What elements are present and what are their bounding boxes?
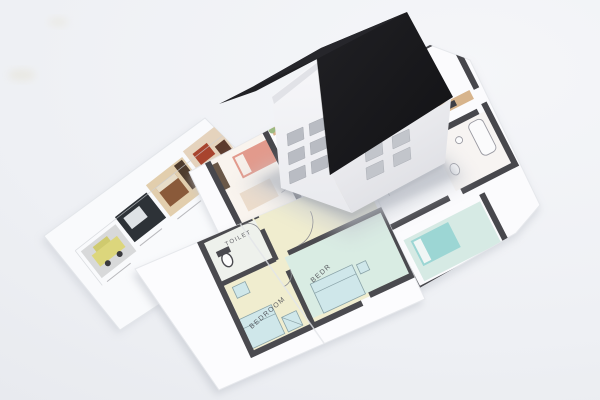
- tabletop-smudges: [8, 17, 68, 81]
- photo-scene: SHWR BA TOILET BEDROOM BEDR: [0, 0, 600, 400]
- smudge: [48, 17, 68, 27]
- scene-canvas: SHWR BA TOILET BEDROOM BEDR: [0, 0, 600, 400]
- smudge: [8, 69, 36, 81]
